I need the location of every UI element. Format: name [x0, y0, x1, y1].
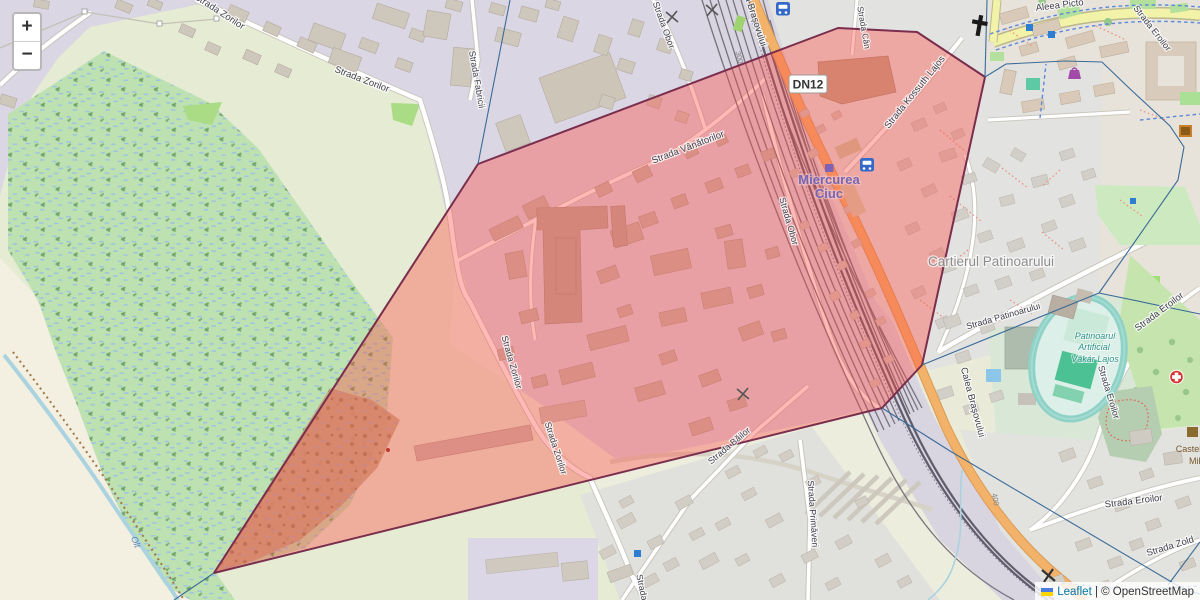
svg-text:Patinoarul: Patinoarul [1075, 331, 1117, 341]
svg-text:Ciuc: Ciuc [815, 186, 843, 201]
svg-text:DN12: DN12 [793, 78, 824, 92]
svg-text:Miercurea: Miercurea [798, 172, 860, 187]
svg-text:Vákár Lajos: Vákár Lajos [1071, 354, 1119, 364]
svg-text:Cartierul Patinoarului: Cartierul Patinoarului [928, 254, 1054, 269]
svg-text:Artificial: Artificial [1077, 342, 1111, 352]
svg-text:Castelul: Castelul [1176, 444, 1200, 454]
svg-text:Mik: Mik [1189, 456, 1200, 466]
